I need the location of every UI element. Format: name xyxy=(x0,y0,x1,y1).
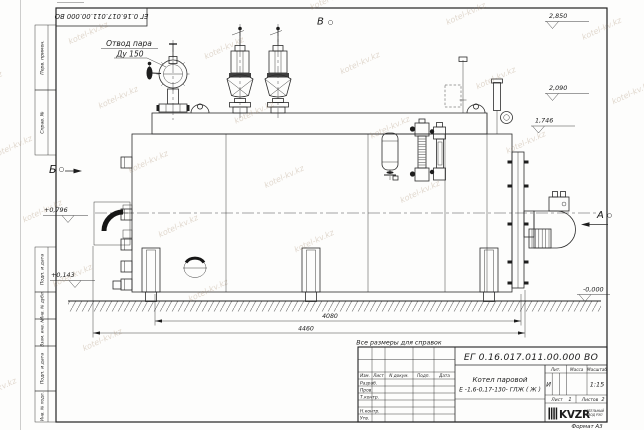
feedwater-elbow-box xyxy=(94,202,132,245)
front-nozzles xyxy=(113,157,132,290)
tb-sheets-value: 2 xyxy=(601,397,604,403)
margin-label-perv-primen: Перв. примен. xyxy=(39,40,45,75)
tb-row-tkontr: Т.контр. xyxy=(360,394,379,400)
sheet-frame: Перв. примен. Справ. № Подп. и дата Инв.… xyxy=(21,0,608,430)
margin-label-podp-data-1: Подп. и дата xyxy=(39,254,45,285)
view-label-b: Б xyxy=(49,163,57,176)
view-label-v: В xyxy=(317,17,324,28)
tb-col-list: Лист xyxy=(372,373,384,378)
tb-scale-value: 1:15 xyxy=(590,381,605,389)
tb-col-podp: Подп. xyxy=(417,373,430,378)
margin-label-inv-podl: Инв. № подл. xyxy=(39,392,44,421)
lifting-lug-right xyxy=(467,104,485,113)
top-designation-inverted: ЕГ 0.16.017.011.00.000 ВО xyxy=(54,12,148,20)
water-level-indicators xyxy=(382,119,446,181)
tb-row-utv: Утв. xyxy=(360,415,369,421)
callout-line2: Ду 150 xyxy=(116,50,144,59)
callout-line1: Отвод пара xyxy=(106,39,152,48)
manhole xyxy=(183,258,207,277)
drawing-sheet: Перв. примен. Справ. № Подп. и дата Инв.… xyxy=(0,0,644,430)
tb-col-izm: Изм. xyxy=(360,373,370,378)
dim-4460: 4460 xyxy=(298,325,314,332)
elev-0143: +0,143 xyxy=(51,271,75,279)
tb-row-nkontr: Н.контр. xyxy=(360,408,380,414)
tb-col-date: Дата xyxy=(438,373,450,378)
tb-sheets-label: Листов xyxy=(581,397,599,403)
steam-outlet-callout: Отвод пара Ду 150 xyxy=(101,39,166,67)
tb-row-prov: Пров. xyxy=(360,387,373,393)
support-foot-left xyxy=(142,248,160,302)
title-block: Изм. Лист N докум. Подп. Дата Разраб. Пр… xyxy=(358,347,607,430)
support-foot-right xyxy=(480,248,498,302)
burner-assembly xyxy=(524,192,576,249)
margin-label-sprav-no: Справ. № xyxy=(39,111,45,134)
tb-sheet-label: Лист xyxy=(550,397,563,403)
tb-sheet-value: 1 xyxy=(568,397,571,403)
tb-lit-label: Лит. xyxy=(550,367,561,372)
margin-label-inv-dubl: Инв. № дубл. xyxy=(39,291,44,320)
tb-mass-label: Масса xyxy=(570,367,584,372)
margin-label-podp-data-2: Подп. и дата xyxy=(39,353,45,384)
elev-2850: 2,850 xyxy=(549,12,567,20)
boiler-body xyxy=(132,113,512,292)
tb-col-doc: N докум. xyxy=(389,373,408,378)
margin-label-vzam-inv: Взам. инв. № xyxy=(39,318,44,347)
rear-flange-ring xyxy=(508,152,529,288)
gauge-stand-fittings xyxy=(445,57,513,134)
elev-0000: -0,000 xyxy=(583,286,604,294)
boiler-general-view-drawing: Перв. примен. Справ. № Подп. и дата Инв.… xyxy=(0,0,644,430)
tb-lit-value: И xyxy=(546,381,551,389)
safety-valve-2 xyxy=(265,24,291,118)
reference-note: Все размеры для справок xyxy=(356,340,442,347)
format-label: Формат А3 xyxy=(571,424,603,430)
view-marks: Б В А xyxy=(49,17,612,227)
kvzr-logo-sub2: ЗАВОД РЭП xyxy=(584,413,603,417)
tb-row-razrab: Разраб. xyxy=(360,380,377,386)
tb-scale-label: Масштаб xyxy=(587,367,607,372)
safety-valve-1 xyxy=(227,24,253,118)
support-foot-middle xyxy=(302,248,320,302)
tb-product-model: Е -1,6-0,17-130- ГЛЖ ( Ж ) xyxy=(459,387,541,394)
tb-product-name: Котел паровой xyxy=(473,376,528,384)
tb-designation: ЕГ 0.16.017.011.00.000 ВО xyxy=(464,352,598,363)
steam-outlet-valve xyxy=(147,40,190,120)
elev-2090: 2,090 xyxy=(549,84,567,92)
elev-0796: +0,796 xyxy=(44,206,68,214)
elev-1746: 1,746 xyxy=(535,117,553,125)
lifting-lug-left xyxy=(191,104,209,113)
dim-4080: 4080 xyxy=(322,313,338,320)
view-label-a: А xyxy=(596,210,604,221)
kvzr-logo: KVZR КОТЕЛЬНЫЙ ЗАВОД РЭП xyxy=(549,408,605,422)
